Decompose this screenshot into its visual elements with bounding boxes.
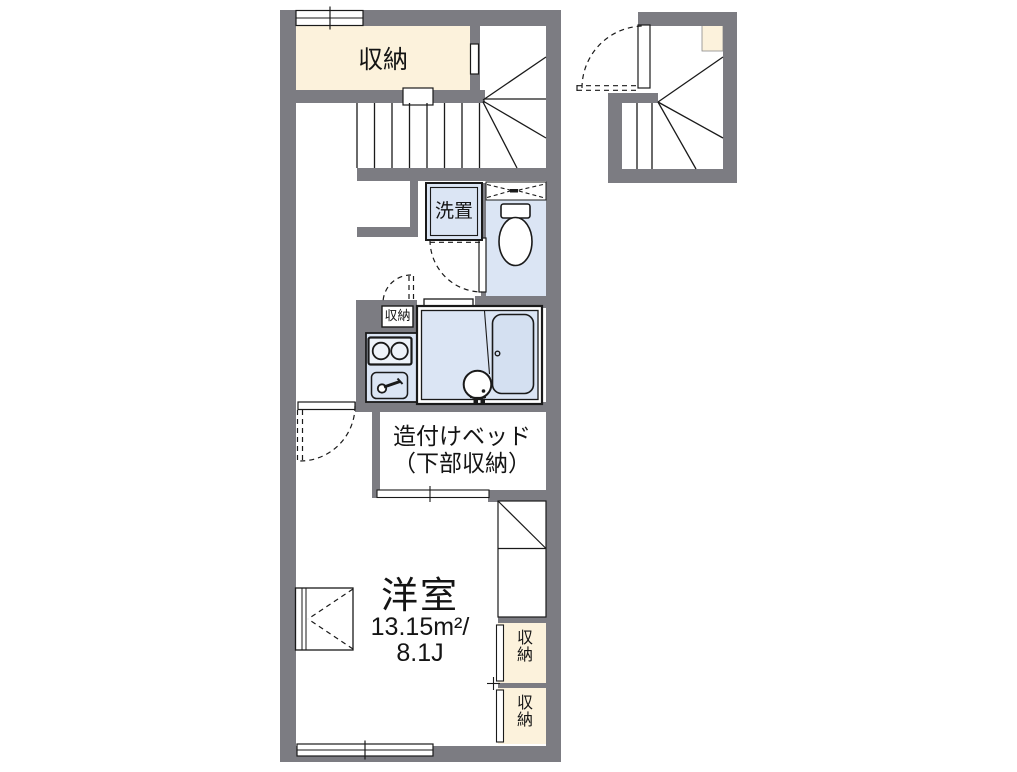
door-swing-kitchen-closet bbox=[383, 275, 414, 303]
wall-hall-nook-horizontal bbox=[357, 227, 418, 237]
stairbox-wall-left bbox=[608, 93, 622, 183]
stairbox-wall-stub bbox=[622, 93, 658, 103]
door-opening-stairs-top bbox=[403, 88, 433, 105]
stairbox-wall-right bbox=[723, 12, 737, 183]
wall-stair-bottom bbox=[357, 168, 561, 181]
laundry-label: 洗置 bbox=[424, 201, 484, 222]
bed-opening bbox=[377, 486, 489, 502]
door-leaf-bedroom bbox=[298, 402, 355, 410]
toilet-bowl bbox=[499, 218, 532, 266]
stairbox-winder-1 bbox=[658, 57, 723, 102]
room-name-label: 洋室 bbox=[330, 575, 510, 616]
toilet-louver-window bbox=[486, 182, 546, 200]
door-swing-washroom bbox=[430, 238, 482, 292]
storage-right-upper-label: 収納 bbox=[516, 630, 534, 664]
room-area-tatami-label: 8.1J bbox=[330, 639, 510, 667]
door-swing-entrance bbox=[577, 26, 644, 91]
meterbox-fill bbox=[702, 25, 723, 51]
stairbox-wall-top bbox=[638, 12, 737, 26]
kitchen-closet-label: 収納 bbox=[382, 309, 413, 324]
stair-treads bbox=[357, 103, 480, 168]
wall-kitchen-left bbox=[356, 334, 366, 402]
bathtub bbox=[493, 315, 534, 394]
door-swing-bedroom bbox=[298, 406, 356, 461]
window-top bbox=[296, 7, 363, 30]
door-leaf-storage-lower bbox=[497, 690, 504, 742]
built-in-bed-label: 造付けベッド （下部収納） bbox=[378, 423, 546, 477]
door-leaf-closet-stairs bbox=[471, 44, 479, 74]
wall-left bbox=[280, 10, 296, 762]
closet-top-label: 収納 bbox=[296, 46, 470, 74]
louver-center-mark bbox=[510, 189, 518, 193]
toilet-tank bbox=[501, 204, 530, 218]
stair-winders bbox=[483, 57, 546, 168]
wall-right bbox=[546, 10, 561, 762]
storage-right-lower-label: 収納 bbox=[516, 695, 534, 729]
built-in-bed-label-line2: （下部収納） bbox=[378, 450, 546, 477]
built-in-bed-label-line1: 造付けベッド bbox=[378, 423, 546, 450]
wall-storage-divider-2 bbox=[498, 683, 546, 688]
toilet-fixture bbox=[499, 204, 532, 266]
wall-bed-bottom bbox=[488, 490, 561, 502]
stairbox-wall-bottom bbox=[608, 169, 737, 183]
bathroom bbox=[417, 306, 542, 404]
wall-closet-bottom bbox=[296, 90, 485, 103]
room-area-sqm-label: 13.15m²/ bbox=[330, 613, 510, 641]
floor-plan: 収納 洗置 収納 造付けベッド （下部収納） 洋室 13.15m²/ 8.1J … bbox=[0, 0, 1017, 772]
door-leaf-entrance bbox=[638, 25, 650, 88]
door-leaf-toilet bbox=[479, 238, 486, 292]
